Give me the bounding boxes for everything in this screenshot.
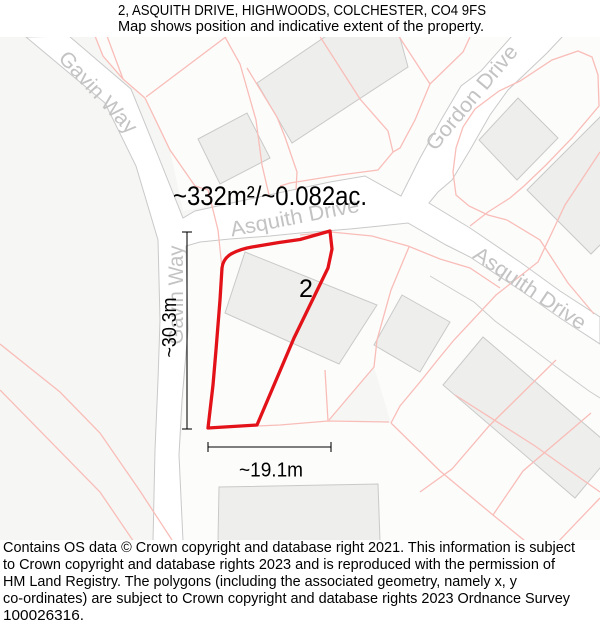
- svg-text:Contains OS data © Crown copyr: Contains OS data © Crown copyright and d…: [3, 539, 576, 556]
- svg-text:to Crown copyright and databas: to Crown copyright and database rights 2…: [3, 556, 556, 573]
- svg-text:100026316.: 100026316.: [3, 607, 84, 624]
- svg-text:2: 2: [299, 275, 313, 303]
- svg-text:2, ASQUITH DRIVE, HIGHWOODS, C: 2, ASQUITH DRIVE, HIGHWOODS, COLCHESTER,…: [118, 2, 486, 19]
- svg-text:HM Land Registry. The polygons: HM Land Registry. The polygons (includin…: [3, 573, 517, 590]
- svg-text:~19.1m: ~19.1m: [239, 460, 303, 482]
- svg-text:Map shows position and indicat: Map shows position and indicative extent…: [118, 18, 484, 35]
- svg-text:~30.3m: ~30.3m: [159, 298, 181, 358]
- svg-text:co-ordinates) are subject to C: co-ordinates) are subject to Crown copyr…: [3, 590, 570, 607]
- svg-text:~332m²/~0.082ac.: ~332m²/~0.082ac.: [173, 181, 367, 211]
